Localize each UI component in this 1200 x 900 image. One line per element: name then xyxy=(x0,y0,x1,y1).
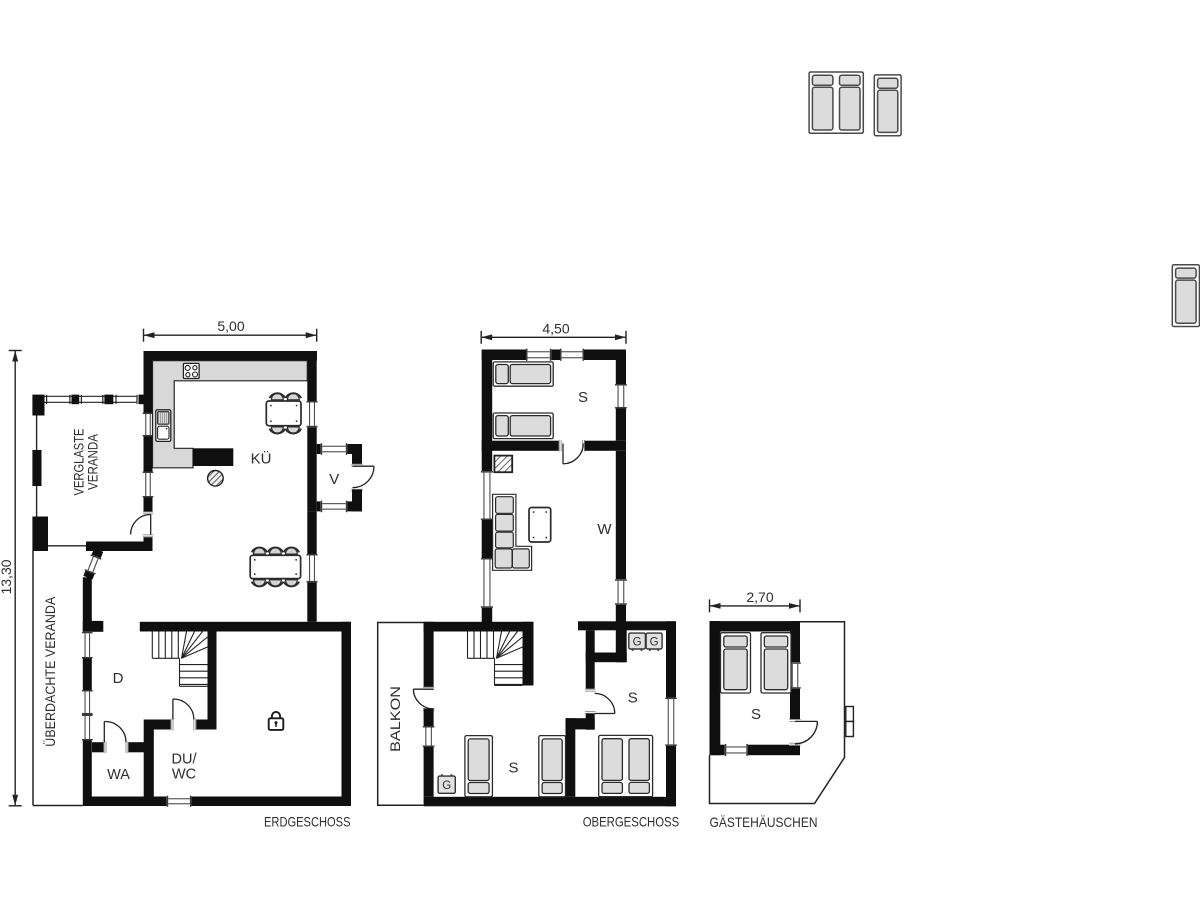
svg-text:BALKON: BALKON xyxy=(387,686,403,752)
svg-text:VERANDA: VERANDA xyxy=(85,433,101,490)
svg-text:S: S xyxy=(508,760,518,777)
svg-text:GÄSTEHÄUSCHEN: GÄSTEHÄUSCHEN xyxy=(710,814,818,830)
svg-text:S: S xyxy=(751,706,761,723)
svg-text:DU/: DU/ xyxy=(172,752,198,768)
svg-text:W: W xyxy=(597,521,612,538)
svg-text:4,50: 4,50 xyxy=(542,321,569,337)
svg-text:V: V xyxy=(329,471,339,488)
svg-text:KÜ: KÜ xyxy=(251,450,272,468)
svg-text:WC: WC xyxy=(172,767,196,783)
svg-text:S: S xyxy=(628,690,638,707)
svg-text:13,30: 13,30 xyxy=(0,559,14,594)
svg-text:5,00: 5,00 xyxy=(217,318,244,334)
svg-text:OBERGESCHOSS: OBERGESCHOSS xyxy=(583,814,680,830)
svg-text:G: G xyxy=(633,637,642,649)
svg-text:S: S xyxy=(578,389,588,406)
svg-text:G: G xyxy=(442,780,451,792)
svg-text:ÜBERDACHTE VERANDA: ÜBERDACHTE VERANDA xyxy=(41,596,58,747)
svg-text:2,70: 2,70 xyxy=(746,589,773,605)
svg-text:WA: WA xyxy=(107,767,130,783)
svg-text:D: D xyxy=(113,670,124,687)
svg-text:ERDGESCHOSS: ERDGESCHOSS xyxy=(264,814,351,830)
svg-text:G: G xyxy=(650,637,659,649)
